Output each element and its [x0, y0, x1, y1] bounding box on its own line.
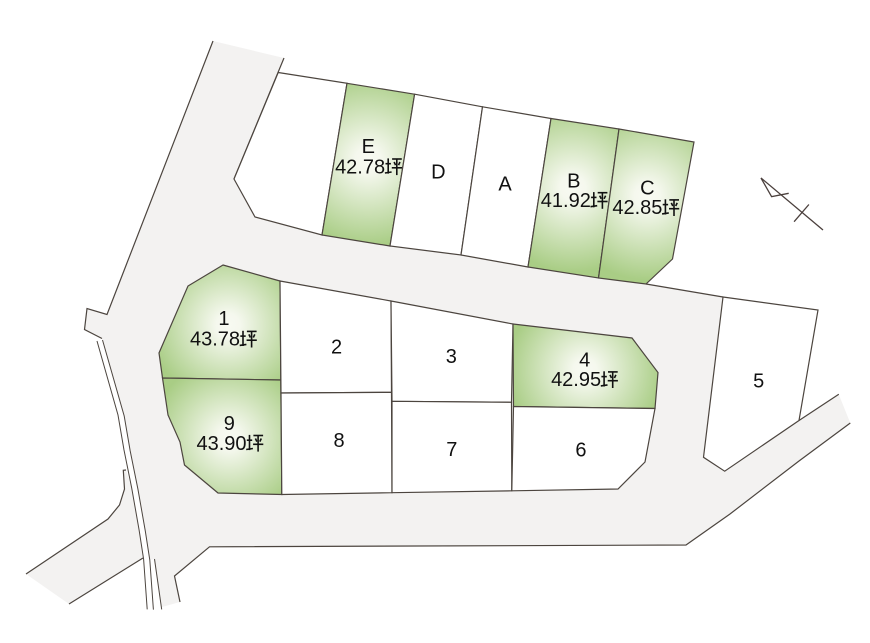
- svg-text:5: 5: [753, 371, 764, 393]
- svg-text:2: 2: [331, 337, 342, 359]
- svg-text:41.92: 41.92: [541, 190, 591, 212]
- svg-text:3: 3: [446, 346, 457, 368]
- svg-text:6: 6: [575, 439, 586, 461]
- svg-text:C: C: [640, 177, 654, 199]
- svg-text:7: 7: [446, 439, 457, 461]
- svg-text:D: D: [431, 161, 445, 183]
- svg-text:A: A: [498, 173, 512, 195]
- svg-text:43.90: 43.90: [196, 433, 246, 455]
- svg-text:42.78: 42.78: [335, 156, 385, 178]
- svg-text:8: 8: [334, 430, 345, 452]
- svg-text:43.78: 43.78: [190, 329, 240, 351]
- svg-text:42.85: 42.85: [612, 197, 662, 219]
- svg-text:E: E: [362, 136, 375, 158]
- svg-text:9: 9: [224, 413, 235, 435]
- svg-text:42.95: 42.95: [551, 369, 601, 391]
- svg-text:1: 1: [218, 308, 229, 330]
